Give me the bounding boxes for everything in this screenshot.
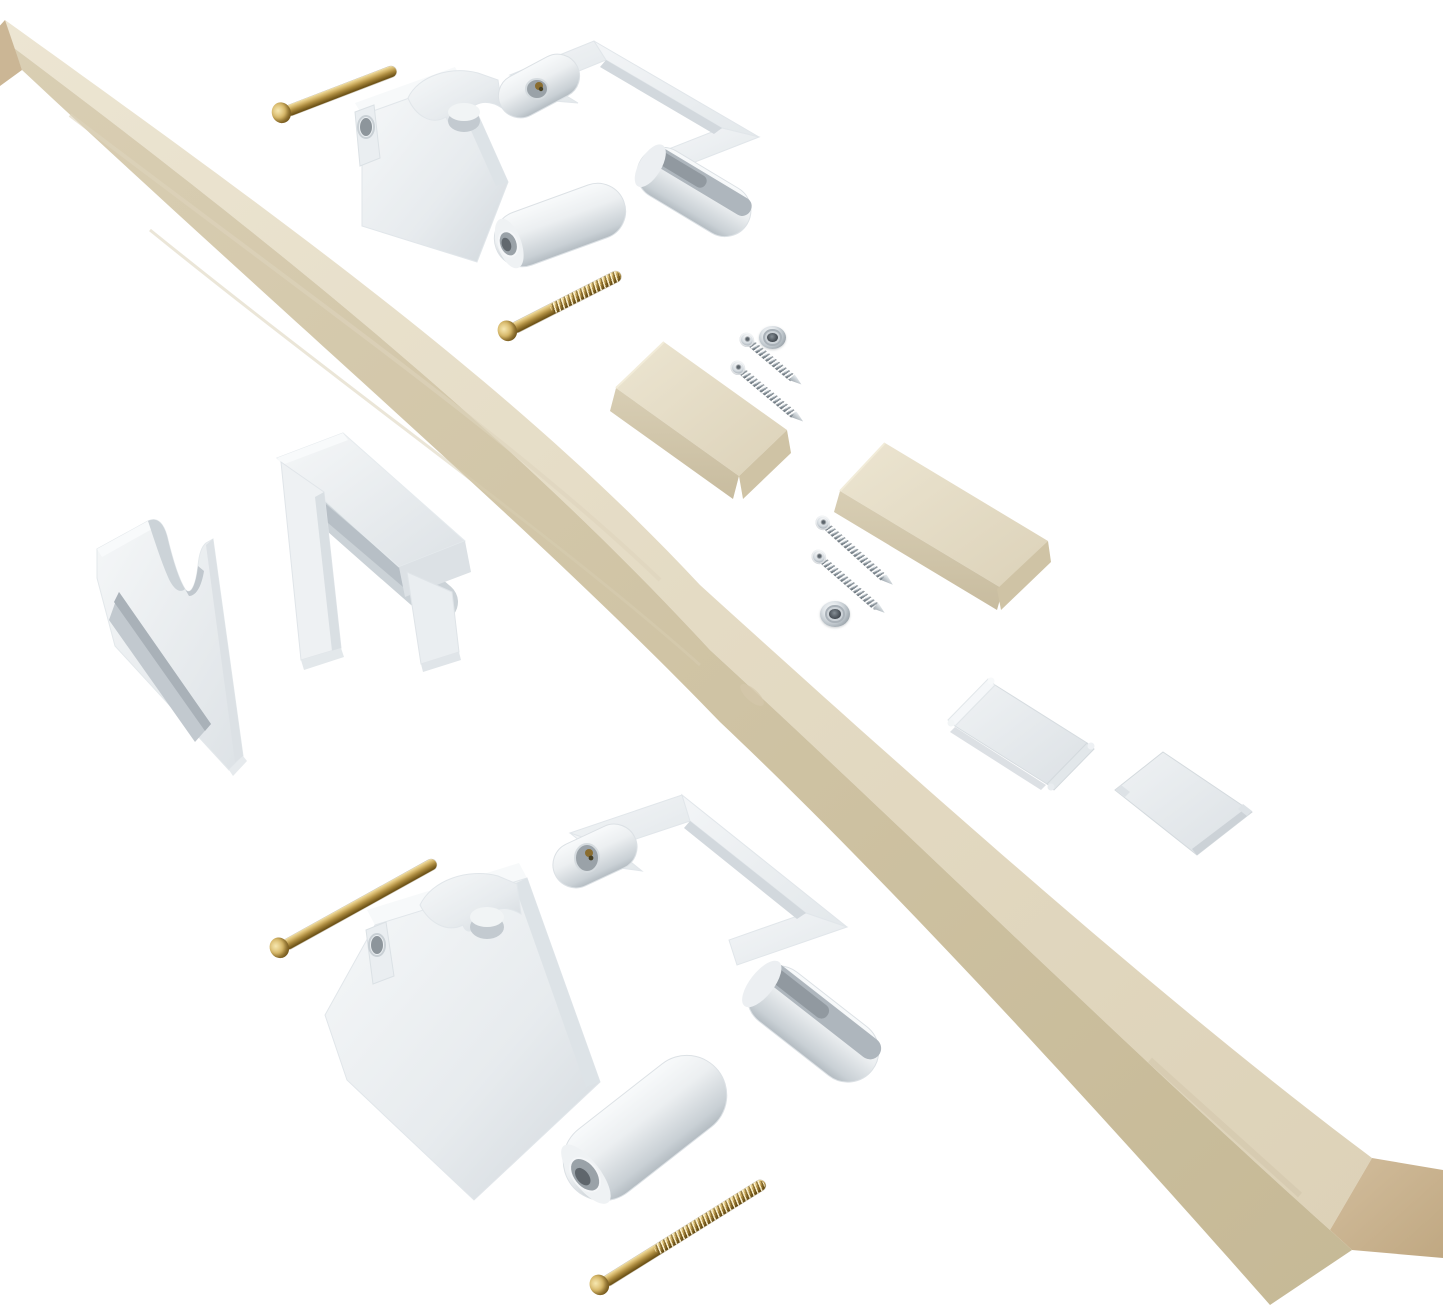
clamp-body (325, 878, 600, 1200)
clamp-assembly-bottom (325, 795, 891, 1217)
flange-screw-hole (371, 936, 383, 954)
washer-bore (829, 609, 840, 619)
clamp-bottom-hinge-piece (325, 863, 743, 1217)
finish-washer-1 (759, 326, 786, 349)
hook-arm-notch-cover (470, 907, 504, 927)
flange-screw-hole (360, 118, 372, 136)
frame-inner-wall-shade (684, 821, 806, 919)
scene-illustration (0, 0, 1445, 1305)
hook-arm-notch-cover (448, 103, 480, 121)
plate-lip-tip (948, 720, 955, 727)
bracket-leg-right (407, 572, 459, 664)
plate-lip-tip (1088, 743, 1095, 750)
saddle-bracket-right (277, 433, 471, 672)
frame-clip-cylinder-bottom (733, 952, 891, 1094)
bore-center-hole (539, 87, 543, 91)
finish-washer-2 (820, 601, 850, 627)
plate-lip-tip (988, 678, 995, 685)
cover-plate-1 (948, 678, 1095, 791)
frame-inner-wall-shade (600, 60, 722, 134)
saddle-bracket-left (97, 520, 247, 776)
frame-arm (594, 41, 759, 137)
cover-plate-2 (1115, 752, 1252, 855)
product-photo: Wooden hand rail Wooden spacer block Two… (0, 0, 1445, 1305)
plate-lip-tip (1048, 784, 1055, 791)
bore-center-hole (589, 856, 594, 861)
clamp-assembly-top (355, 41, 761, 275)
clamp-roller (487, 175, 634, 274)
washer-bore (767, 333, 777, 342)
clamp-bottom-frame-piece (545, 795, 891, 1095)
frame-arm (729, 913, 847, 965)
clamp-top-hinge-piece (355, 67, 633, 275)
plate-base (1115, 752, 1252, 855)
